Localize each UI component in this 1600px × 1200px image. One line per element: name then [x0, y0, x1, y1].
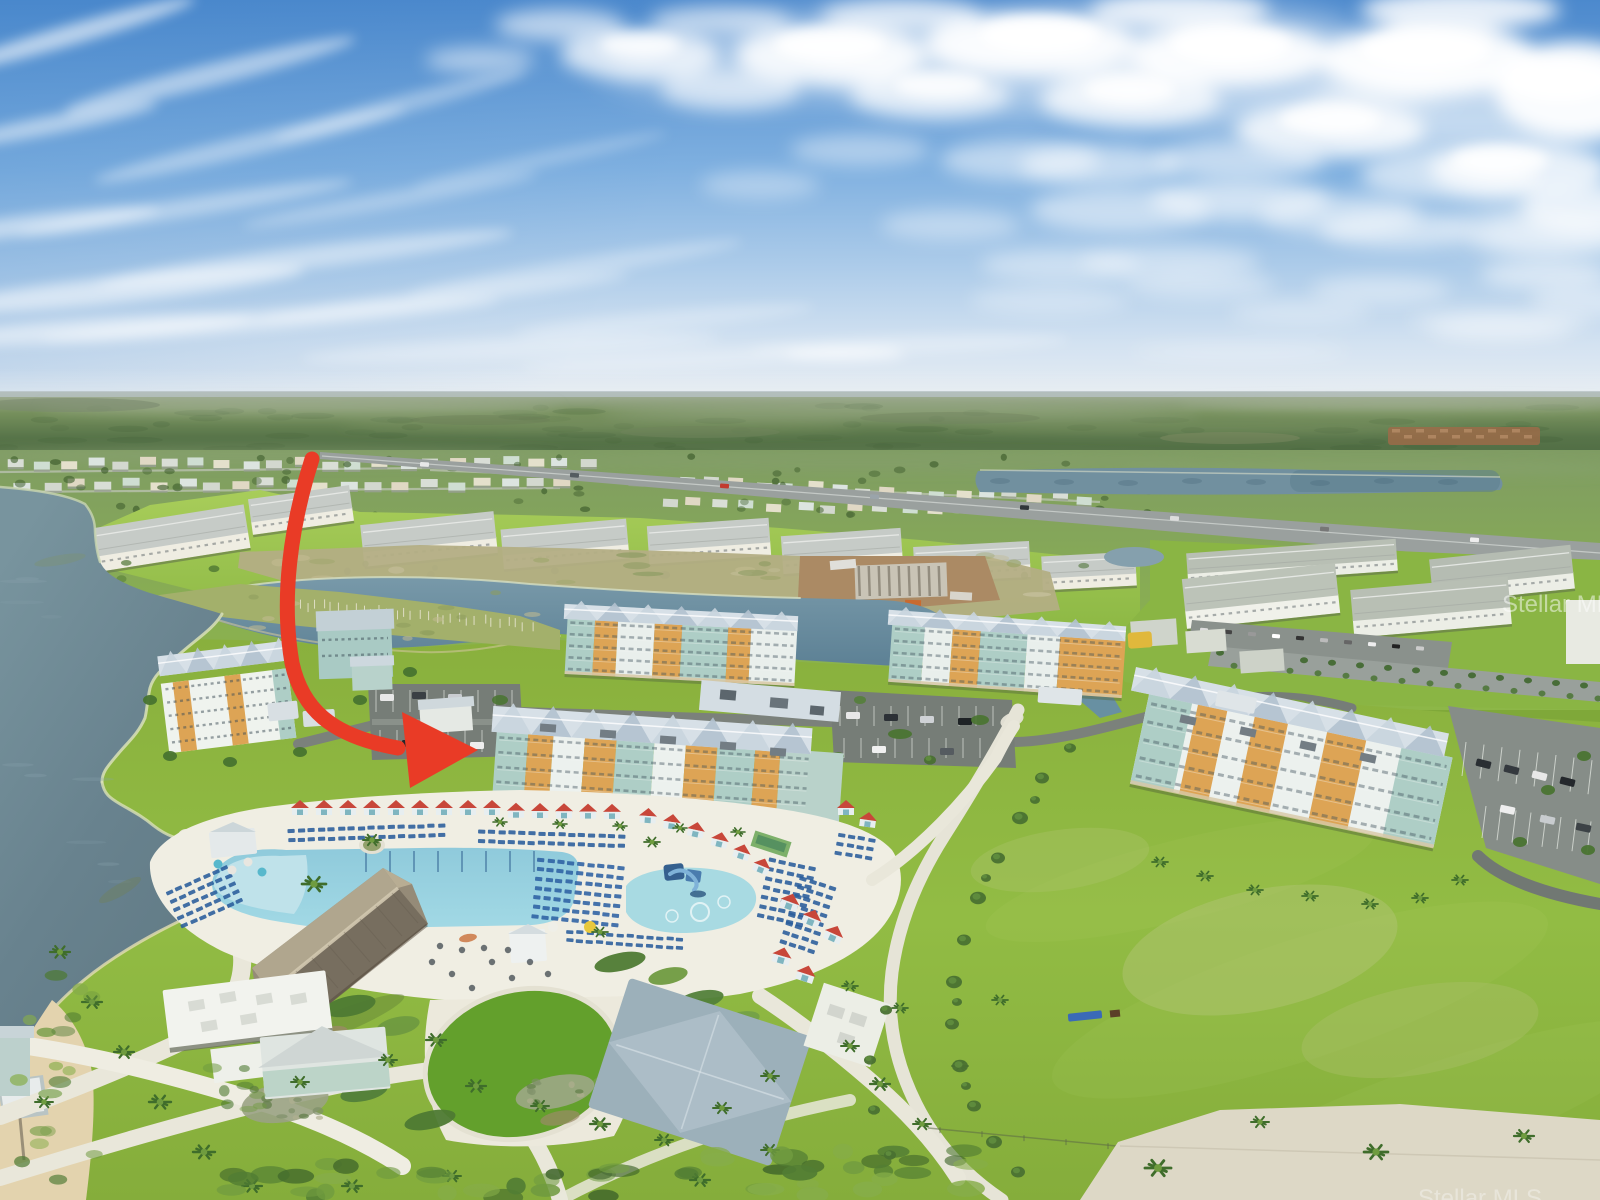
svg-text:Stellar MLS: Stellar MLS — [1502, 591, 1600, 618]
svg-text:Stellar MLS: Stellar MLS — [1418, 1185, 1542, 1200]
